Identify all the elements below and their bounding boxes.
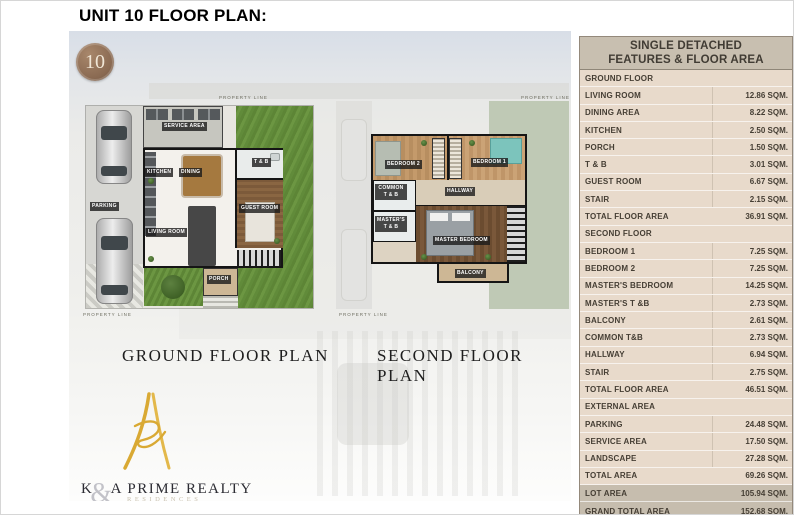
table-section-header-row: SECOND FLOOR: [580, 226, 792, 243]
table-data-row-value: 24.48 SQM.: [712, 416, 792, 432]
unit-number-badge: 10: [76, 43, 114, 81]
car-windshield: [101, 236, 128, 250]
room-label-tb: T & B: [252, 158, 271, 167]
ka-monogram-icon: [121, 388, 173, 474]
table-total-row-value: 36.91 SQM.: [712, 208, 792, 224]
table-total-row-label: TOTAL FLOOR AREA: [580, 385, 712, 394]
table-data-row: LANDSCAPE27.28 SQM.: [580, 451, 792, 468]
faded-house-roof: [149, 83, 569, 99]
table-data-row-label: HALLWAY: [580, 350, 712, 359]
ground-floor-caption: GROUND FLOOR PLAN: [122, 346, 329, 366]
car-top-view: [96, 110, 132, 184]
table-data-row-label: STAIR: [580, 368, 712, 377]
table-data-row-value: 2.75 SQM.: [712, 364, 792, 380]
room-label-guest-room: GUEST ROOM: [239, 204, 280, 213]
table-total-row: TOTAL FLOOR AREA46.51 SQM.: [580, 381, 792, 398]
table-data-row: MASTER'S BEDROOM14.25 SQM.: [580, 278, 792, 295]
property-line-label: PROPERTY LINE: [219, 95, 268, 100]
table-section-header-row-label: EXTERNAL AREA: [580, 402, 792, 411]
table-data-row-value: 1.50 SQM.: [712, 139, 792, 155]
plant-icon: [148, 178, 154, 184]
table-footer-row-value: 152.68 SQM.: [712, 502, 792, 515]
room-label-service-area: SERVICE AREA: [162, 122, 207, 131]
table-data-row-label: DINING AREA: [580, 108, 712, 117]
table-data-row-label: STAIR: [580, 195, 712, 204]
table-data-row: PARKING24.48 SQM.: [580, 416, 792, 433]
property-line-label: PROPERTY LINE: [339, 312, 388, 317]
table-data-row-label: MASTER'S T &B: [580, 299, 712, 308]
table-data-row-value: 12.86 SQM.: [712, 87, 792, 103]
table-footer-row-label: GRAND TOTAL AREA: [580, 507, 712, 515]
room-label-parking: PARKING: [90, 202, 119, 211]
page-title: UNIT 10 FLOOR PLAN:: [79, 6, 267, 26]
car-rear-window: [101, 166, 127, 176]
table-data-row-value: 27.28 SQM.: [712, 451, 792, 467]
table-data-row: T & B3.01 SQM.: [580, 156, 792, 173]
table-body: GROUND FLOORLIVING ROOM12.86 SQM.DINING …: [580, 70, 792, 515]
bush-icon: [161, 275, 185, 299]
table-data-row: PORCH1.50 SQM.: [580, 139, 792, 156]
table-total-row: TOTAL AREA69.26 SQM.: [580, 468, 792, 485]
table-data-row: COMMON T&B2.73 SQM.: [580, 329, 792, 346]
wardrobe-cabinet: [432, 138, 445, 179]
table-data-row: STAIR2.75 SQM.: [580, 364, 792, 381]
table-data-row-label: LIVING ROOM: [580, 91, 712, 100]
room-label-masters-tb: MASTER'S T & B: [375, 216, 407, 232]
table-data-row: BALCONY2.61 SQM.: [580, 312, 792, 329]
table-data-row-value: 17.50 SQM.: [712, 433, 792, 449]
table-data-row-label: T & B: [580, 160, 712, 169]
table-data-row: KITCHEN2.50 SQM.: [580, 122, 792, 139]
table-data-row: STAIR2.15 SQM.: [580, 191, 792, 208]
room-label-dining: DINING: [179, 168, 202, 177]
table-total-row-label: TOTAL AREA: [580, 471, 712, 480]
table-data-row-label: PARKING: [580, 420, 712, 429]
car-windshield: [101, 126, 127, 140]
stair-flight: [507, 206, 525, 262]
room-label-common-tb: COMMON T & B: [375, 184, 407, 200]
table-data-row: BEDROOM 27.25 SQM.: [580, 260, 792, 277]
table-data-row: LIVING ROOM12.86 SQM.: [580, 87, 792, 104]
wardrobe-cabinet: [449, 138, 462, 179]
table-data-row-value: 6.94 SQM.: [712, 347, 792, 363]
table-data-row: BEDROOM 17.25 SQM.: [580, 243, 792, 260]
table-data-row-label: BALCONY: [580, 316, 712, 325]
faded-car: [341, 119, 367, 181]
table-data-row-label: MASTER'S BEDROOM: [580, 281, 712, 290]
kitchen-counter: [145, 152, 156, 236]
living-room-sofa: [188, 206, 216, 266]
room-label-bedroom1: BEDROOM 1: [471, 158, 508, 167]
table-data-row: MASTER'S T &B2.73 SQM.: [580, 295, 792, 312]
table-data-row-value: 8.22 SQM.: [712, 105, 792, 121]
table-data-row-label: SERVICE AREA: [580, 437, 712, 446]
table-data-row: SERVICE AREA17.50 SQM.: [580, 433, 792, 450]
table-total-row-value: 46.51 SQM.: [712, 381, 792, 397]
room-label-balcony: BALCONY: [455, 269, 486, 278]
plant-icon: [469, 140, 475, 146]
table-data-row-value: 2.50 SQM.: [712, 122, 792, 138]
bedroom2-bed: [375, 141, 401, 176]
plant-icon: [274, 238, 280, 244]
plant-icon: [421, 140, 427, 146]
table-data-row-value: 2.73 SQM.: [712, 329, 792, 345]
table-title-line2: FEATURES & FLOOR AREA: [608, 53, 764, 67]
property-line-label: PROPERTY LINE: [521, 95, 570, 100]
brand-rest: A PRIME REALTY: [111, 481, 253, 497]
floor-plan-sheet: UNIT 10 FLOOR PLAN: 10 PROPERTY LINE PRO…: [0, 0, 794, 515]
table-footer-row: LOT AREA105.94 SQM.: [580, 485, 792, 502]
table-total-row: TOTAL FLOOR AREA36.91 SQM.: [580, 208, 792, 225]
table-data-row-value: 2.15 SQM.: [712, 191, 792, 207]
property-line-label: PROPERTY LINE: [83, 312, 132, 317]
car-rear-window: [101, 285, 128, 295]
toilet-fixture: [270, 153, 280, 161]
brand-subtitle: RESIDENCES: [127, 496, 201, 501]
table-data-row: HALLWAY6.94 SQM.: [580, 347, 792, 364]
unit-number: 10: [85, 51, 105, 74]
table-data-row-label: BEDROOM 2: [580, 264, 712, 273]
room-label-living-room: LIVING ROOM: [146, 228, 187, 237]
table-section-header-row-label: GROUND FLOOR: [580, 74, 792, 83]
table-title: SINGLE DETACHED FEATURES & FLOOR AREA: [580, 37, 792, 70]
table-data-row-value: 3.01 SQM.: [712, 156, 792, 172]
plant-icon: [485, 254, 491, 260]
table-data-row-value: 14.25 SQM.: [712, 278, 792, 294]
table-footer-row: GRAND TOTAL AREA152.68 SQM.: [580, 502, 792, 515]
table-total-row-value: 69.26 SQM.: [712, 468, 792, 484]
table-data-row-label: BEDROOM 1: [580, 247, 712, 256]
table-title-line1: SINGLE DETACHED: [630, 39, 742, 53]
room-label-bedroom2: BEDROOM 2: [385, 160, 422, 169]
table-data-row-label: PORCH: [580, 143, 712, 152]
plant-icon: [148, 256, 154, 262]
table-data-row-label: GUEST ROOM: [580, 177, 712, 186]
table-data-row-value: 6.67 SQM.: [712, 174, 792, 190]
table-section-header-row-label: SECOND FLOOR: [580, 229, 792, 238]
table-data-row-value: 7.25 SQM.: [712, 260, 792, 276]
ground-floor-plan: SERVICE AREA KITCHEN DINING T & B GUEST …: [86, 106, 313, 308]
room-label-master-bedroom: MASTER BEDROOM: [433, 236, 490, 245]
ka-prime-realty-logo: K&A PRIME REALTY RESIDENCES: [69, 386, 309, 501]
stair-flight: [237, 250, 281, 266]
room-label-porch: PORCH: [207, 275, 231, 284]
table-data-row-label: LANDSCAPE: [580, 454, 712, 463]
table-data-row-label: COMMON T&B: [580, 333, 712, 342]
table-data-row-label: KITCHEN: [580, 126, 712, 135]
table-data-row-value: 7.25 SQM.: [712, 243, 792, 259]
faded-car: [341, 229, 367, 301]
plant-icon: [421, 254, 427, 260]
second-floor-caption: SECOND FLOOR PLAN: [377, 346, 571, 386]
table-data-row-value: 2.73 SQM.: [712, 295, 792, 311]
table-data-row: DINING AREA8.22 SQM.: [580, 105, 792, 122]
table-footer-row-value: 105.94 SQM.: [712, 485, 792, 501]
table-data-row: GUEST ROOM6.67 SQM.: [580, 174, 792, 191]
second-floor-plan: BEDROOM 2 BEDROOM 1 COMMON T & B HALLWAY…: [371, 134, 531, 286]
master-bed: [426, 210, 474, 256]
table-total-row-label: TOTAL FLOOR AREA: [580, 212, 712, 221]
car-top-view: [96, 218, 133, 304]
floor-plan-image-panel: 10 PROPERTY LINE PROPERTY LINE: [69, 31, 571, 501]
table-footer-row-label: LOT AREA: [580, 489, 712, 498]
room-label-kitchen: KITCHEN: [145, 168, 173, 177]
table-section-header-row: GROUND FLOOR: [580, 70, 792, 87]
garden-patch: [144, 268, 203, 306]
laundry-appliances: [146, 109, 220, 120]
table-section-header-row: EXTERNAL AREA: [580, 399, 792, 416]
table-data-row-value: 2.61 SQM.: [712, 312, 792, 328]
floor-area-table: SINGLE DETACHED FEATURES & FLOOR AREA GR…: [579, 36, 793, 515]
room-label-hallway: HALLWAY: [445, 187, 475, 196]
porch-steps: [203, 296, 238, 308]
